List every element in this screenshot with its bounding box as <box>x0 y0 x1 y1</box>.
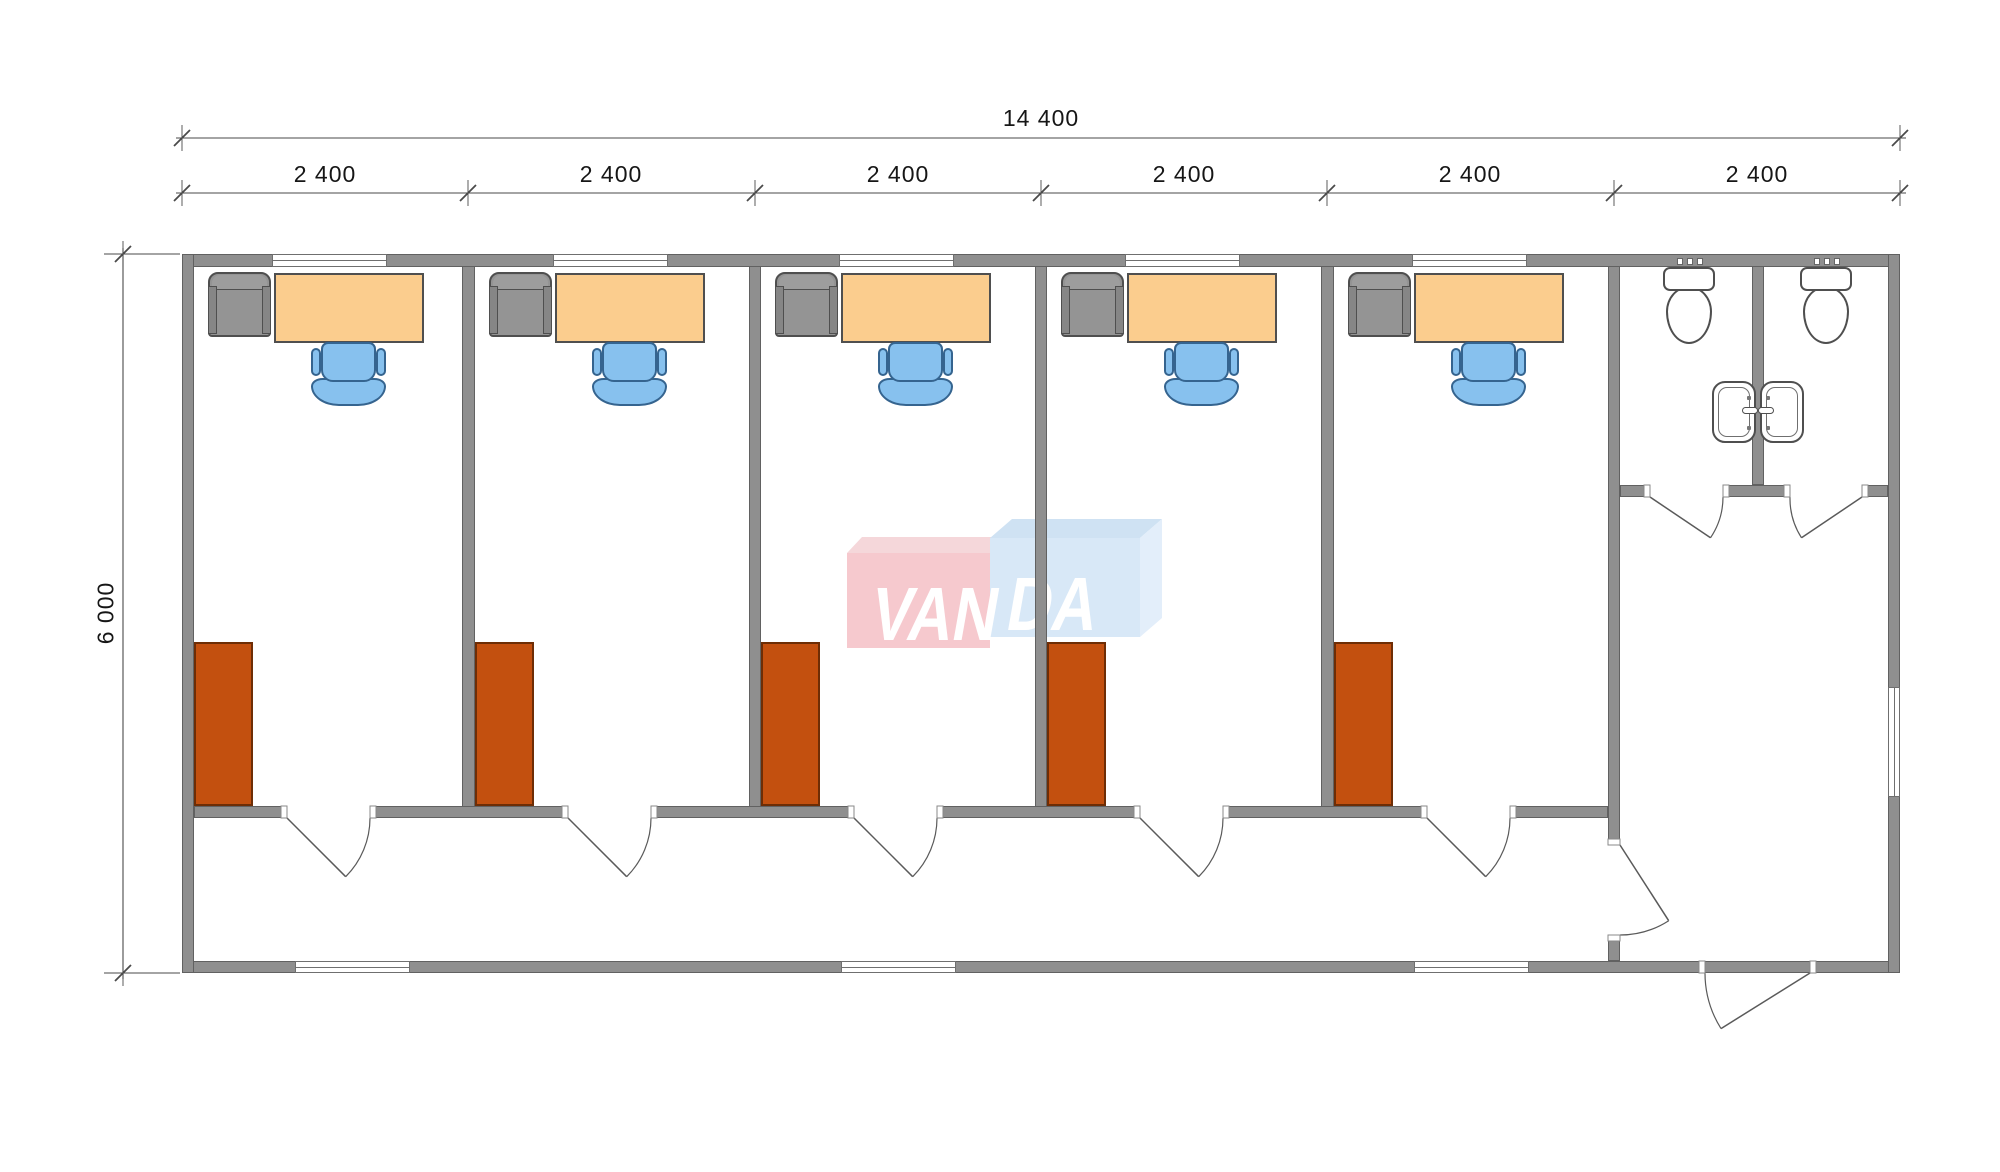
window-glass <box>842 967 955 968</box>
window-corridor-3 <box>1414 961 1529 973</box>
wall-corridor <box>1510 806 1608 818</box>
wall-corridor <box>370 806 568 818</box>
wall-corridor <box>937 806 1140 818</box>
window-corridor-1 <box>295 961 410 973</box>
window-glass <box>1415 967 1528 968</box>
toilet-tank-1 <box>1663 267 1715 291</box>
dimension-label-module-6: 2 400 <box>1726 161 1789 188</box>
office-chair-seat-4 <box>1174 342 1229 382</box>
wall-bottom <box>182 961 1900 973</box>
armchair-railL <box>208 286 217 334</box>
wall-bathroom-west-stub <box>1608 935 1620 961</box>
office-chair-armrest-left-2 <box>592 348 602 376</box>
window-glass <box>554 260 667 261</box>
sink-mount-dot <box>1766 396 1770 400</box>
window-glass <box>273 260 386 261</box>
desk-office-4 <box>1127 273 1277 343</box>
office-chair-armrest-left-3 <box>878 348 888 376</box>
office-chair-armrest-left-4 <box>1164 348 1174 376</box>
armchair-railL <box>775 286 784 334</box>
dimension-label-total-width: 14 400 <box>1003 105 1079 132</box>
window-office-3 <box>839 254 954 267</box>
sink-mount-dot <box>1747 396 1751 400</box>
desk-office-5 <box>1414 273 1564 343</box>
toilet-tank-2 <box>1800 267 1852 291</box>
office-chair-armrest-right-3 <box>943 348 953 376</box>
wardrobe-cabinet-office-4 <box>1047 642 1106 806</box>
office-chair-armrest-right-2 <box>657 348 667 376</box>
wardrobe-cabinet-office-2 <box>475 642 534 806</box>
armchair-office-3 <box>775 272 838 337</box>
desk-office-3 <box>841 273 991 343</box>
armchair-railL <box>1348 286 1357 334</box>
armchair-office-4 <box>1061 272 1124 337</box>
dimension-label-module-2: 2 400 <box>580 161 643 188</box>
wall-partition-3 <box>1035 266 1047 818</box>
wall-left <box>182 254 194 973</box>
wall-partition-4 <box>1321 266 1334 818</box>
dimension-label-module-1: 2 400 <box>294 161 357 188</box>
desk-office-2 <box>555 273 705 343</box>
window-glass <box>1894 688 1895 796</box>
wardrobe-cabinet-office-1 <box>194 642 253 806</box>
desk-office-1 <box>274 273 424 343</box>
sink-mount-dot <box>1766 426 1770 430</box>
window-office-4 <box>1125 254 1240 267</box>
office-chair-seat-2 <box>602 342 657 382</box>
office-chair-back-3 <box>878 378 953 406</box>
office-chair-armrest-right-5 <box>1516 348 1526 376</box>
window-office-1 <box>272 254 387 267</box>
wall-corridor <box>651 806 854 818</box>
flush-button-mark <box>1687 258 1693 265</box>
flush-button-mark <box>1814 258 1820 265</box>
wall-stall <box>1723 485 1790 497</box>
window-glass <box>1126 260 1239 261</box>
wall-partition-1 <box>462 266 475 818</box>
flush-button-mark <box>1834 258 1840 265</box>
dimension-label-total-height: 6 000 <box>93 582 120 645</box>
armchair-railL <box>1061 286 1070 334</box>
flush-button-mark <box>1824 258 1830 265</box>
office-chair-back-2 <box>592 378 667 406</box>
wall-stall-divider <box>1752 266 1764 485</box>
floor-plan: VAN DA 14 400 2 400 2 400 2 400 2 400 2 … <box>0 0 2000 1172</box>
dimension-label-module-4: 2 400 <box>1153 161 1216 188</box>
dimension-label-module-5: 2 400 <box>1439 161 1502 188</box>
office-chair-seat-5 <box>1461 342 1516 382</box>
armchair-back <box>1352 275 1407 290</box>
wall-right <box>1888 254 1900 973</box>
armchair-railR <box>1402 286 1411 334</box>
wardrobe-cabinet-office-5 <box>1334 642 1393 806</box>
office-chair-back-5 <box>1451 378 1526 406</box>
office-chair-seat-1 <box>321 342 376 382</box>
office-chair-back-1 <box>311 378 386 406</box>
office-chair-back-4 <box>1164 378 1239 406</box>
window-lobby <box>1888 687 1900 797</box>
armchair-back <box>493 275 548 290</box>
logo-text-van: VAN <box>865 572 1006 657</box>
wall-corridor <box>1223 806 1427 818</box>
armchair-office-5 <box>1348 272 1411 337</box>
logo-blue-box-side <box>1140 519 1162 637</box>
window-glass <box>296 967 409 968</box>
armchair-railR <box>1115 286 1124 334</box>
armchair-railR <box>829 286 838 334</box>
sink-mount-dot <box>1747 426 1751 430</box>
office-chair-armrest-left-1 <box>311 348 321 376</box>
armchair-office-2 <box>489 272 552 337</box>
logo-red-box-top <box>847 537 1005 553</box>
window-glass <box>840 260 953 261</box>
wall-corridor <box>194 806 287 818</box>
window-office-2 <box>553 254 668 267</box>
armchair-railR <box>543 286 552 334</box>
wall-bathroom-west <box>1608 266 1620 845</box>
armchair-office-1 <box>208 272 271 337</box>
wall-stall <box>1620 485 1650 497</box>
window-corridor-2 <box>841 961 956 973</box>
armchair-back <box>212 275 267 290</box>
wall-partition-2 <box>749 266 761 818</box>
window-office-5 <box>1412 254 1527 267</box>
office-chair-seat-3 <box>888 342 943 382</box>
wall-stall <box>1862 485 1888 497</box>
flush-button-mark <box>1677 258 1683 265</box>
armchair-back <box>779 275 834 290</box>
office-chair-armrest-right-1 <box>376 348 386 376</box>
armchair-railL <box>489 286 498 334</box>
office-chair-armrest-right-4 <box>1229 348 1239 376</box>
office-chair-armrest-left-5 <box>1451 348 1461 376</box>
flush-button-mark <box>1697 258 1703 265</box>
sink-faucet-right <box>1758 407 1774 414</box>
sink-faucet-left <box>1742 407 1758 414</box>
wardrobe-cabinet-office-3 <box>761 642 820 806</box>
armchair-railR <box>262 286 271 334</box>
dimension-label-module-3: 2 400 <box>867 161 930 188</box>
window-glass <box>1413 260 1526 261</box>
armchair-back <box>1065 275 1120 290</box>
logo-text-da: DA <box>1001 562 1105 647</box>
logo-blue-box-top <box>990 519 1162 538</box>
